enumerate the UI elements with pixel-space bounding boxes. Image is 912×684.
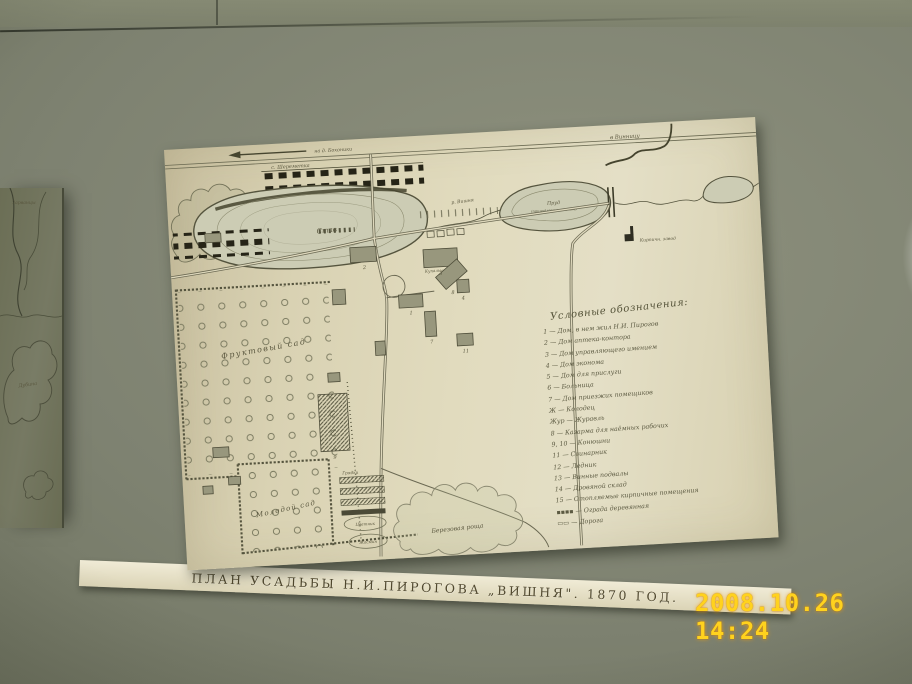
beds-label: Грядки: [341, 470, 359, 476]
building-number: 3: [439, 271, 443, 277]
right-pond: [702, 175, 754, 204]
birch-grove: Березовая роща: [391, 480, 524, 558]
building-7: [424, 311, 436, 337]
road-arrow-icon: [228, 151, 240, 159]
left-exhibit-art: Зарванцы Дубина: [0, 188, 62, 528]
map-sheet: на д. Бохоники с. Шереметка Выгон Став: [164, 117, 779, 570]
building-number: 1: [409, 310, 413, 316]
left-river-line: [0, 315, 62, 317]
estate-pond: Пруд (принадлеж. к имению): [498, 179, 615, 234]
road-to-vinnitsa: [603, 124, 673, 166]
building-number: 8: [451, 290, 455, 296]
left-grove-cloud-small: [24, 471, 54, 500]
building-4: [457, 279, 470, 293]
jasmine-label: Жасмин: [358, 539, 377, 545]
dark-bar: [341, 508, 385, 515]
camera-timestamp: 2008.10.26 14:24: [695, 589, 912, 645]
building-number: 7: [430, 339, 434, 345]
wall-seam-vertical: [216, 0, 218, 25]
west-village-houses: [173, 228, 270, 259]
left-road-line-2: [24, 192, 46, 290]
to-vinnitsa-label: в Винницу: [610, 133, 641, 141]
road-destination-label: на д. Бохоники: [314, 147, 352, 155]
brick-factory-label: Кирпичн. завод: [639, 237, 677, 244]
building-1: [398, 294, 423, 308]
photo-scene: Зарванцы Дубина ПЛАН УСАДЬБЫ Н.И.ПИРОГОВ…: [0, 0, 912, 684]
building-number: 4: [461, 295, 466, 301]
young-orchard: Молодой сад: [240, 461, 333, 552]
building-stable: [318, 393, 350, 452]
brick-factory-icon: [624, 234, 633, 241]
river-label: р. Вишня: [451, 197, 474, 206]
legend-panel: Условные обозначения: 1 — Дом, в нем жил…: [542, 294, 763, 530]
left-road-line: [10, 188, 22, 316]
building-number: 2: [362, 265, 367, 271]
left-exhibit-map-fragment: Зарванцы Дубина: [0, 188, 64, 528]
west-building: [205, 233, 221, 243]
estate-pond-label-1: Пруд: [546, 200, 560, 207]
building-2: [350, 246, 377, 262]
fruit-orchard: Фруктовый сад: [178, 284, 338, 476]
brick-factory: Кирпичн. завод: [624, 224, 676, 245]
left-village-label: Зарванцы: [12, 200, 36, 206]
flower-bed-label: Цветник: [355, 521, 375, 527]
camera-flash-highlight: [838, 158, 912, 363]
building-number: 11: [463, 348, 470, 354]
building-11: [457, 333, 474, 346]
marsh-ticks: [420, 210, 498, 214]
river-to-vinnitsa: в Винницу: [603, 119, 759, 209]
